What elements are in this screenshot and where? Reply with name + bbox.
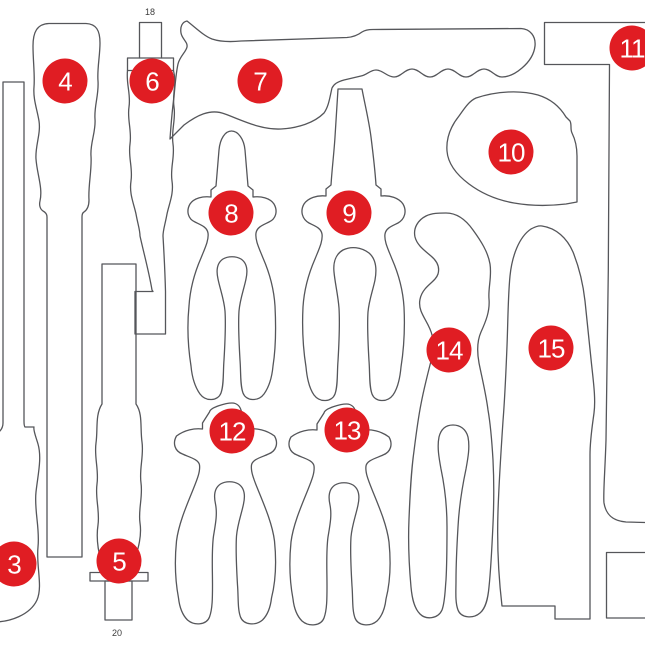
tool-number-marker-7: 7 [238, 59, 283, 104]
tool-number-marker-3: 3 [0, 542, 37, 587]
markers-layer: 34567891011121314151820 [0, 0, 645, 645]
tool-number-marker-6: 6 [130, 59, 175, 104]
tool-number-marker-13: 13 [325, 408, 370, 453]
tool-number-marker-12: 12 [210, 409, 255, 454]
dimension-label-20: 20 [112, 628, 122, 638]
tool-number-marker-8: 8 [209, 191, 254, 236]
tool-number-marker-11: 11 [610, 26, 645, 71]
tool-number-marker-14: 14 [427, 328, 472, 373]
tool-number-marker-9: 9 [327, 191, 372, 236]
tool-inlay-diagram: 34567891011121314151820 [0, 0, 645, 645]
dimension-label-18: 18 [145, 7, 155, 17]
tool-number-marker-4: 4 [43, 59, 88, 104]
tool-number-marker-15: 15 [529, 326, 574, 371]
tool-number-marker-10: 10 [489, 130, 534, 175]
tool-number-marker-5: 5 [97, 539, 142, 584]
